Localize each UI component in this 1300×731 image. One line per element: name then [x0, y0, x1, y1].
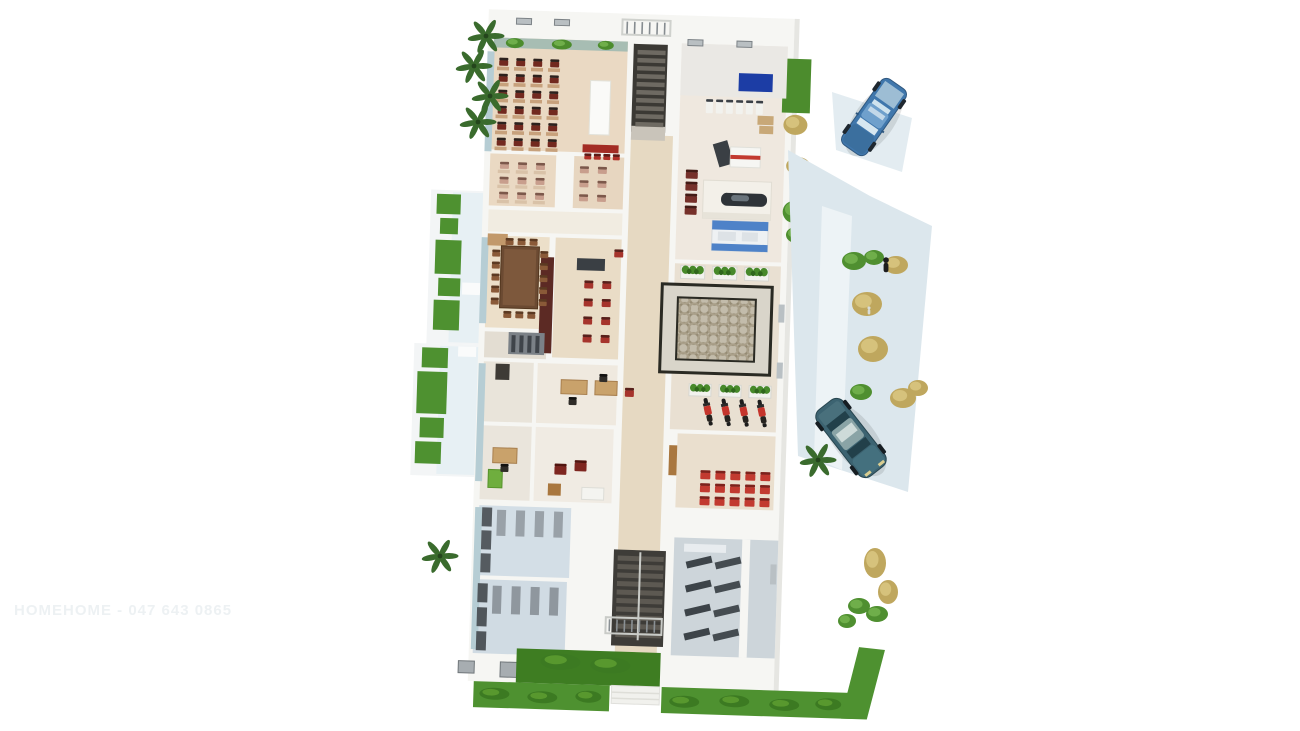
student-chair-pink-seat — [598, 169, 607, 174]
red-chair-seat — [760, 487, 770, 494]
wall-fixture — [706, 99, 713, 113]
red-chair — [760, 472, 770, 481]
meeting-chair-seat — [517, 241, 525, 246]
person — [883, 257, 889, 272]
meeting-chair-back — [540, 263, 548, 266]
watermark: HOMEHOME - 047 643 0865 — [14, 602, 232, 619]
student-chair-back — [532, 91, 541, 94]
waiting-chair-red — [582, 334, 591, 342]
wall-fixture-back — [726, 100, 733, 103]
storage-shelf — [534, 511, 544, 537]
reception-counter-panel — [742, 232, 758, 241]
waiting-chair-seat — [685, 196, 697, 203]
waiting-chair-red-back — [602, 281, 611, 284]
student-desk — [497, 185, 509, 189]
planter-box — [745, 267, 769, 281]
student-chair-pink — [580, 166, 589, 173]
meeting-chair — [503, 311, 511, 318]
red-chair-back — [760, 485, 770, 488]
bird-head — [867, 306, 870, 309]
wall-window-slit — [770, 564, 777, 584]
waiting-chair-red-back — [601, 317, 610, 320]
palm-center — [816, 458, 821, 463]
student-chair-seat — [533, 77, 542, 83]
student-chair-seat — [550, 78, 559, 84]
shrub-green-highlight — [844, 254, 857, 264]
meeting-chair-back — [492, 273, 500, 276]
grass-patch — [422, 347, 449, 368]
wall-fixture-back — [736, 100, 743, 103]
meeting-chair-back — [539, 287, 547, 290]
student-chair-pink-seat — [579, 183, 588, 188]
waiting-chair-seat — [685, 208, 697, 215]
conference-table-top — [503, 249, 537, 306]
student-chair-pink — [518, 162, 527, 169]
student-chair-seat — [516, 77, 525, 83]
wall-fixture — [716, 99, 723, 113]
red-chair — [700, 470, 710, 479]
student-chair — [516, 58, 525, 66]
student-chair-back — [515, 90, 524, 93]
meeting-chair-seat — [492, 264, 500, 269]
student-chair-seat — [499, 60, 508, 66]
office-chair-back — [569, 397, 577, 400]
student-chair — [549, 91, 558, 99]
meeting-chair-back — [527, 312, 535, 315]
red-chair-back — [730, 484, 740, 487]
student-chair — [515, 106, 524, 114]
walkway-step — [458, 346, 476, 357]
front-red-chair-seat — [584, 156, 591, 160]
red-chair — [714, 497, 724, 506]
stair-landing — [631, 126, 665, 141]
model-car-windows — [731, 195, 749, 202]
waiting-chair-red-seat — [602, 301, 611, 307]
meeting-chair — [517, 238, 525, 245]
waiting-chair-red — [601, 317, 610, 325]
stair-step — [636, 106, 664, 111]
palm-center — [472, 64, 477, 69]
meeting-chair-seat — [539, 289, 547, 294]
student-chair-pink-seat — [500, 164, 509, 169]
red-chair-back — [700, 496, 710, 499]
student-chair-seat — [533, 61, 542, 67]
planter-box — [749, 386, 771, 399]
student-chair-pink — [517, 192, 526, 199]
student-chair-back — [548, 139, 557, 142]
red-chair-back — [715, 484, 725, 487]
storage-cabinet — [477, 607, 488, 626]
student-chair-pink-back — [536, 163, 545, 166]
red-chair-seat — [699, 498, 709, 505]
student-chair-pink-back — [598, 167, 607, 170]
red-chair-seat — [700, 473, 710, 480]
scene-svg — [0, 0, 1300, 731]
waiting-chair-red-back — [602, 299, 611, 302]
student-chair-pink-seat — [597, 183, 606, 188]
roof-vent — [516, 18, 531, 24]
person-head — [883, 257, 889, 263]
student-chair-back — [531, 139, 540, 142]
student-chair-pink-seat — [597, 197, 606, 202]
meeting-chair — [539, 287, 547, 294]
person-body — [884, 263, 889, 272]
toilet-counter — [684, 544, 726, 553]
wall-fixture-seat — [746, 103, 753, 115]
red-chair — [730, 484, 740, 493]
student-chair-seat — [549, 110, 558, 116]
student-chair-back — [550, 59, 559, 62]
palm-plant — [421, 538, 458, 574]
meeting-chair-seat — [491, 300, 499, 305]
student-desk — [513, 83, 525, 87]
storage-shelf — [496, 510, 506, 536]
student-desk — [495, 115, 507, 119]
student-desk — [547, 100, 559, 104]
grass-patch — [416, 371, 447, 414]
meeting-chair — [491, 273, 499, 280]
red-chair-seat — [700, 486, 710, 493]
shelf-stripe — [527, 336, 532, 353]
red-chair-seat — [730, 473, 740, 480]
red-chair — [715, 471, 725, 480]
waiting-chair-red-seat — [602, 283, 611, 289]
blue-sign-board — [738, 73, 773, 92]
shrub-green-highlight — [866, 252, 877, 260]
reception-counter-panel — [718, 232, 736, 242]
student-chair-pink-back — [579, 194, 588, 197]
wall-fixture-back — [756, 101, 763, 104]
red-chair-seat — [744, 500, 754, 507]
waiting-chair-red — [602, 281, 611, 289]
meeting-chair-back — [539, 275, 547, 278]
office-desk — [595, 381, 617, 396]
red-chair-back — [700, 483, 710, 486]
shrub-green-highlight — [852, 386, 864, 395]
red-chair — [729, 497, 739, 506]
student-chair-seat — [514, 140, 523, 146]
waiting-chair-red-back — [601, 335, 610, 338]
student-chair-seat — [497, 124, 506, 130]
waiting-chair-red-seat — [583, 319, 592, 325]
front-red-chair-back — [584, 153, 591, 156]
student-desk — [529, 132, 541, 136]
red-chair — [759, 498, 769, 507]
shrub-tan-highlight — [910, 382, 921, 391]
shrub-green-highlight — [868, 608, 880, 617]
red-chair — [744, 498, 754, 507]
wall-fixture — [746, 100, 753, 114]
shrub-green-highlight — [850, 600, 862, 609]
student-chair-seat — [548, 142, 557, 148]
student-chair-pink-seat — [517, 195, 526, 200]
student-chair — [550, 59, 559, 67]
palm-center — [476, 120, 481, 125]
student-chair-back — [499, 58, 508, 61]
student-desk — [514, 67, 526, 71]
waiting-chair — [686, 170, 698, 179]
palm-center — [484, 34, 489, 39]
lounge-armchair-back — [555, 464, 567, 467]
student-chair — [514, 138, 523, 146]
student-desk — [528, 148, 540, 152]
student-chair — [515, 90, 524, 98]
student-chair-seat — [531, 125, 540, 131]
palm-center — [488, 94, 493, 99]
meeting-chair-seat — [505, 240, 513, 245]
storage-cabinet — [481, 530, 492, 549]
meeting-chair-back — [491, 297, 499, 300]
meeting-chair-seat — [529, 241, 537, 246]
office-desk — [561, 380, 587, 395]
student-chair-pink-back — [597, 181, 606, 184]
shrub-tan-highlight — [861, 339, 878, 354]
red-chair-back — [730, 471, 740, 474]
student-chair-pink-seat — [517, 180, 526, 185]
student-chair — [497, 138, 506, 146]
student-desk — [546, 116, 558, 120]
student-chair-pink-back — [499, 192, 508, 195]
student-chair-pink-back — [517, 192, 526, 195]
student-desk — [512, 131, 524, 135]
office-chair — [500, 464, 508, 472]
student-chair-pink-back — [580, 166, 589, 169]
meeting-chair-back — [503, 311, 511, 314]
meeting-chair — [539, 299, 547, 306]
storage-cabinet — [477, 583, 488, 602]
shrub-tan-highlight — [893, 390, 908, 401]
student-chair-pink-seat — [535, 180, 544, 185]
corridor-chair-red — [625, 388, 634, 397]
front-red-chair-seat — [594, 156, 601, 160]
waiting-chair-red — [600, 335, 609, 343]
bird — [867, 306, 870, 314]
student-desk — [497, 200, 509, 204]
planter-box — [681, 265, 705, 279]
red-chair-seat — [730, 486, 740, 493]
wall-fixture-back — [706, 99, 713, 102]
student-desk — [516, 170, 528, 174]
student-chair-pink — [535, 178, 544, 185]
student-chair-pink — [536, 163, 545, 170]
student-desk — [513, 99, 525, 103]
waiting-chair-red-seat — [584, 301, 593, 307]
student-chair-back — [516, 74, 525, 77]
planter-box — [689, 384, 711, 397]
student-desk — [533, 201, 545, 205]
shelf-stripe — [519, 335, 524, 352]
red-chair — [745, 485, 755, 494]
waiting-chair — [685, 205, 697, 214]
meeting-chair-seat — [540, 265, 548, 270]
waiting-chair-red-back — [584, 280, 593, 283]
office-chair-back — [599, 374, 607, 377]
meeting-chair-seat — [539, 301, 547, 306]
office-chair-seat — [500, 466, 508, 472]
student-chair-pink — [597, 195, 606, 202]
meeting-chair — [515, 311, 523, 318]
student-chair-pink-back — [500, 177, 509, 180]
student-chair-back — [497, 138, 506, 141]
student-chair-pink-back — [535, 193, 544, 196]
lawn-inset — [516, 648, 661, 687]
hall-floor — [488, 209, 623, 235]
lounge-armchair-back — [575, 460, 587, 463]
wall-window-slit — [778, 304, 785, 322]
meeting-chair — [492, 249, 500, 256]
student-chair-pink-seat — [518, 165, 527, 170]
meeting-chair-seat — [539, 277, 547, 282]
waiting-chair-seat — [686, 172, 698, 179]
waiting-chair — [685, 182, 697, 191]
front-red-chair-back — [594, 154, 601, 157]
student-chair-seat — [549, 94, 558, 100]
office-chair-seat — [599, 376, 607, 382]
student-chair — [548, 123, 557, 131]
student-chair-seat — [531, 141, 540, 147]
shrub-tan-highlight — [880, 582, 891, 595]
red-chair-back — [715, 497, 725, 500]
storage-box — [759, 126, 773, 134]
student-chair-back — [515, 106, 524, 109]
student-chair-back — [499, 74, 508, 77]
student-chair-pink-back — [536, 178, 545, 181]
front-red-chair-seat — [613, 157, 620, 161]
stair-step — [636, 98, 664, 103]
student-chair-back — [514, 122, 523, 125]
meeting-chair — [491, 297, 499, 304]
storage-cabinet — [480, 553, 491, 572]
waiting-chair-back — [685, 193, 697, 196]
stair-step — [637, 66, 665, 71]
student-chair — [497, 122, 506, 130]
meeting-chair-seat — [491, 276, 499, 281]
shrub-green-highlight — [840, 615, 850, 623]
meeting-chair-back — [506, 238, 514, 241]
reception-counter-top — [712, 220, 768, 231]
wall-fixture-seat — [736, 102, 743, 114]
meeting-chair — [540, 251, 548, 258]
red-chair-seat — [745, 487, 755, 494]
student-desk — [496, 99, 508, 103]
storage-shelf — [511, 586, 521, 614]
student-desk — [534, 171, 546, 175]
red-chair-seat — [759, 500, 769, 507]
corridor-chair-red-back — [625, 388, 634, 391]
podium-desk — [589, 80, 611, 135]
lounge-armchair-seat — [574, 463, 586, 472]
meeting-chair-back — [540, 251, 548, 254]
student-chair-pink-seat — [580, 169, 589, 174]
student-chair — [549, 107, 558, 115]
student-chair-pink — [499, 192, 508, 199]
red-chair-seat — [715, 473, 725, 480]
wall-fixture-seat — [706, 102, 713, 114]
student-chair-seat — [499, 76, 508, 82]
front-red-chair — [584, 153, 591, 159]
shelf-stripe — [535, 336, 540, 353]
meeting-chair-seat — [492, 252, 500, 257]
student-chair-pink-seat — [536, 165, 545, 170]
student-chair — [531, 123, 540, 131]
wall-fixture — [726, 100, 733, 114]
shrub-tan-highlight — [866, 551, 878, 568]
waiting-chair-back — [685, 205, 697, 208]
meeting-chair-seat — [515, 314, 523, 319]
red-chair-seat — [745, 474, 755, 481]
student-chair-seat — [532, 93, 541, 99]
student-chair-pink-seat — [535, 195, 544, 200]
student-chair-pink-seat — [499, 179, 508, 184]
student-desk — [547, 84, 559, 88]
white-table — [582, 487, 604, 500]
student-chair-pink-back — [500, 162, 509, 165]
grass-patch — [438, 278, 461, 297]
student-desk — [495, 130, 507, 134]
waiting-chair-red-back — [583, 316, 592, 319]
wall-fixture-seat — [756, 103, 763, 115]
red-chair-back — [760, 498, 770, 501]
student-chair-pink — [579, 194, 588, 201]
red-chair — [700, 483, 710, 492]
wall-fixture — [736, 100, 743, 114]
student-chair-pink-back — [518, 162, 527, 165]
meeting-chair-back — [530, 239, 538, 242]
student-desk — [531, 68, 543, 72]
grass-patch — [433, 300, 460, 331]
red-chair — [699, 496, 709, 505]
student-chair — [550, 75, 559, 83]
shelf-stripe — [511, 335, 516, 352]
meeting-chair-back — [518, 238, 526, 241]
storage-shelf — [549, 587, 559, 615]
office-cabinet — [495, 364, 509, 380]
student-desk — [498, 170, 510, 174]
meeting-chair — [529, 239, 537, 246]
waiting-chair-red — [584, 298, 593, 306]
courtyard-mosaic — [676, 297, 756, 361]
lawn-wrap — [841, 647, 885, 720]
student-chair-pink — [579, 180, 588, 187]
meeting-chair-back — [492, 249, 500, 252]
office-desk — [493, 448, 517, 464]
student-desk — [494, 146, 506, 150]
wall-fixture-seat — [716, 102, 723, 114]
meeting-chair-seat — [527, 314, 535, 319]
student-desk — [529, 116, 541, 120]
red-chair-seat — [714, 499, 724, 506]
student-chair-back — [550, 75, 559, 78]
stair-step — [635, 122, 663, 127]
stair-step — [637, 82, 665, 87]
waiting-chair-red-seat — [614, 252, 623, 258]
student-chair — [533, 59, 542, 67]
waiting-chair-back — [685, 182, 697, 185]
wall-fixture-back — [716, 99, 723, 102]
wall-fixture-seat — [726, 102, 733, 114]
red-chair-back — [760, 472, 770, 475]
student-chair-back — [533, 75, 542, 78]
meeting-chair — [527, 312, 535, 319]
student-chair-pink-back — [518, 177, 527, 180]
student-desk — [530, 100, 542, 104]
wall-window — [458, 661, 474, 673]
wall-fixture — [756, 101, 763, 115]
student-chair-seat — [515, 93, 524, 99]
meeting-chair — [491, 285, 499, 292]
planter-box — [719, 385, 741, 398]
storage-shelf — [530, 587, 540, 615]
